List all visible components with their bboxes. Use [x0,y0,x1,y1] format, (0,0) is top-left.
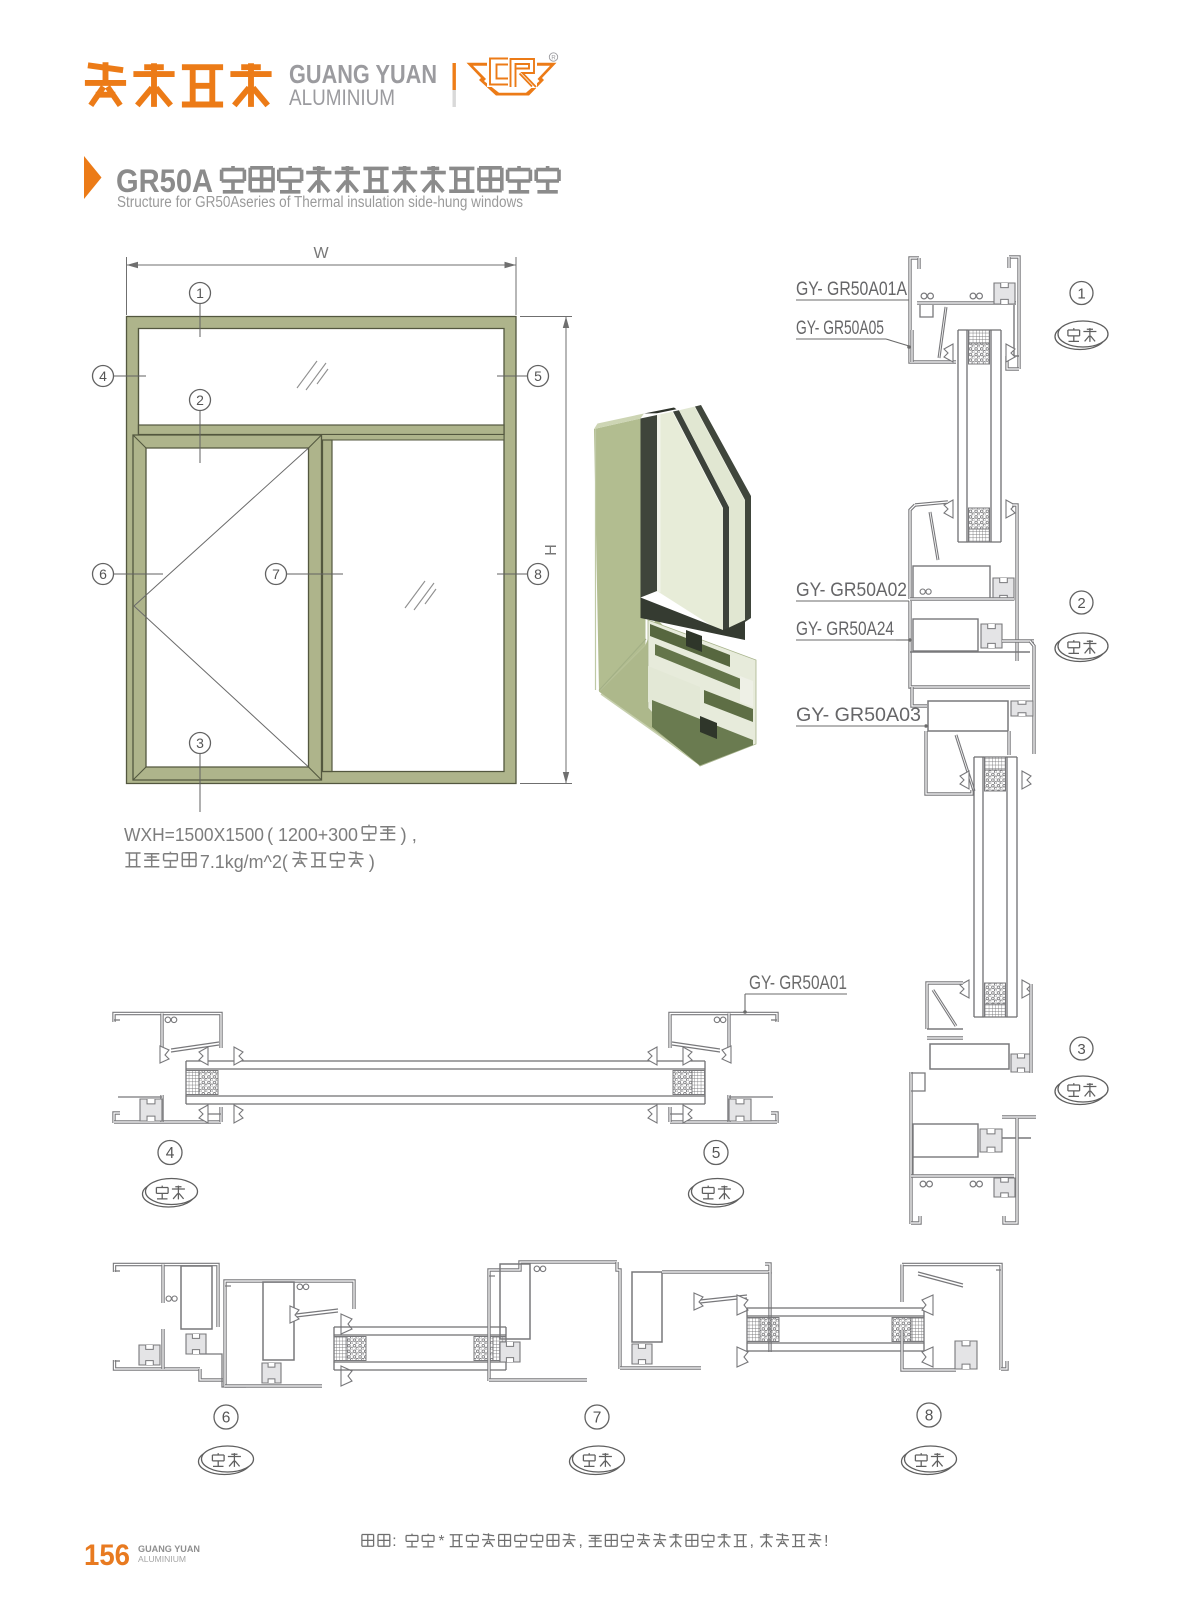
svg-text:ALUMINIUM: ALUMINIUM [138,1554,186,1564]
svg-text:7: 7 [272,566,280,582]
svg-text:8: 8 [925,1407,934,1424]
svg-text:!: ! [824,1533,828,1550]
svg-text:GY- GR50A02: GY- GR50A02 [796,580,907,601]
svg-text:GY- GR50A05: GY- GR50A05 [796,318,884,339]
svg-text:5: 5 [712,1145,721,1162]
svg-text:*: * [438,1533,444,1550]
svg-text:6: 6 [222,1409,231,1426]
svg-text:,: , [750,1533,754,1550]
svg-text:H: H [543,544,560,556]
svg-text:1: 1 [1077,285,1085,302]
svg-text:GY- GR50A01A: GY- GR50A01A [796,279,907,300]
svg-text:7: 7 [593,1409,602,1426]
svg-text:W: W [313,245,329,262]
svg-text:) ,: ) , [400,824,416,845]
svg-text:3: 3 [196,735,204,751]
svg-text:7.1kg/m^2(: 7.1kg/m^2( [200,851,289,872]
svg-text:1200+300: 1200+300 [278,824,358,845]
svg-text::: : [392,1533,396,1550]
svg-text:Structure for GR50Aseries of T: Structure for GR50Aseries of Thermal ins… [117,194,523,211]
svg-text:2: 2 [196,392,204,408]
svg-text:8: 8 [534,566,542,582]
svg-text:GY- GR50A24: GY- GR50A24 [796,619,894,640]
svg-text:GY- GR50A03: GY- GR50A03 [796,705,921,726]
svg-text:156: 156 [84,1539,130,1572]
svg-text:WXH=1500X1500: WXH=1500X1500 [124,824,264,845]
svg-text:6: 6 [99,566,107,582]
svg-text:(: ( [267,824,274,845]
svg-text:2: 2 [1077,595,1085,612]
svg-text:,: , [578,1533,582,1550]
svg-text:4: 4 [99,368,107,384]
svg-text:GY- GR50A01: GY- GR50A01 [749,973,847,994]
svg-text:3: 3 [1077,1041,1085,1058]
svg-text:R: R [551,56,556,62]
svg-text:1: 1 [196,285,204,301]
svg-text:4: 4 [166,1145,175,1162]
svg-text:5: 5 [534,368,542,384]
svg-text:ALUMINIUM: ALUMINIUM [289,85,395,110]
svg-text:): ) [369,851,375,872]
